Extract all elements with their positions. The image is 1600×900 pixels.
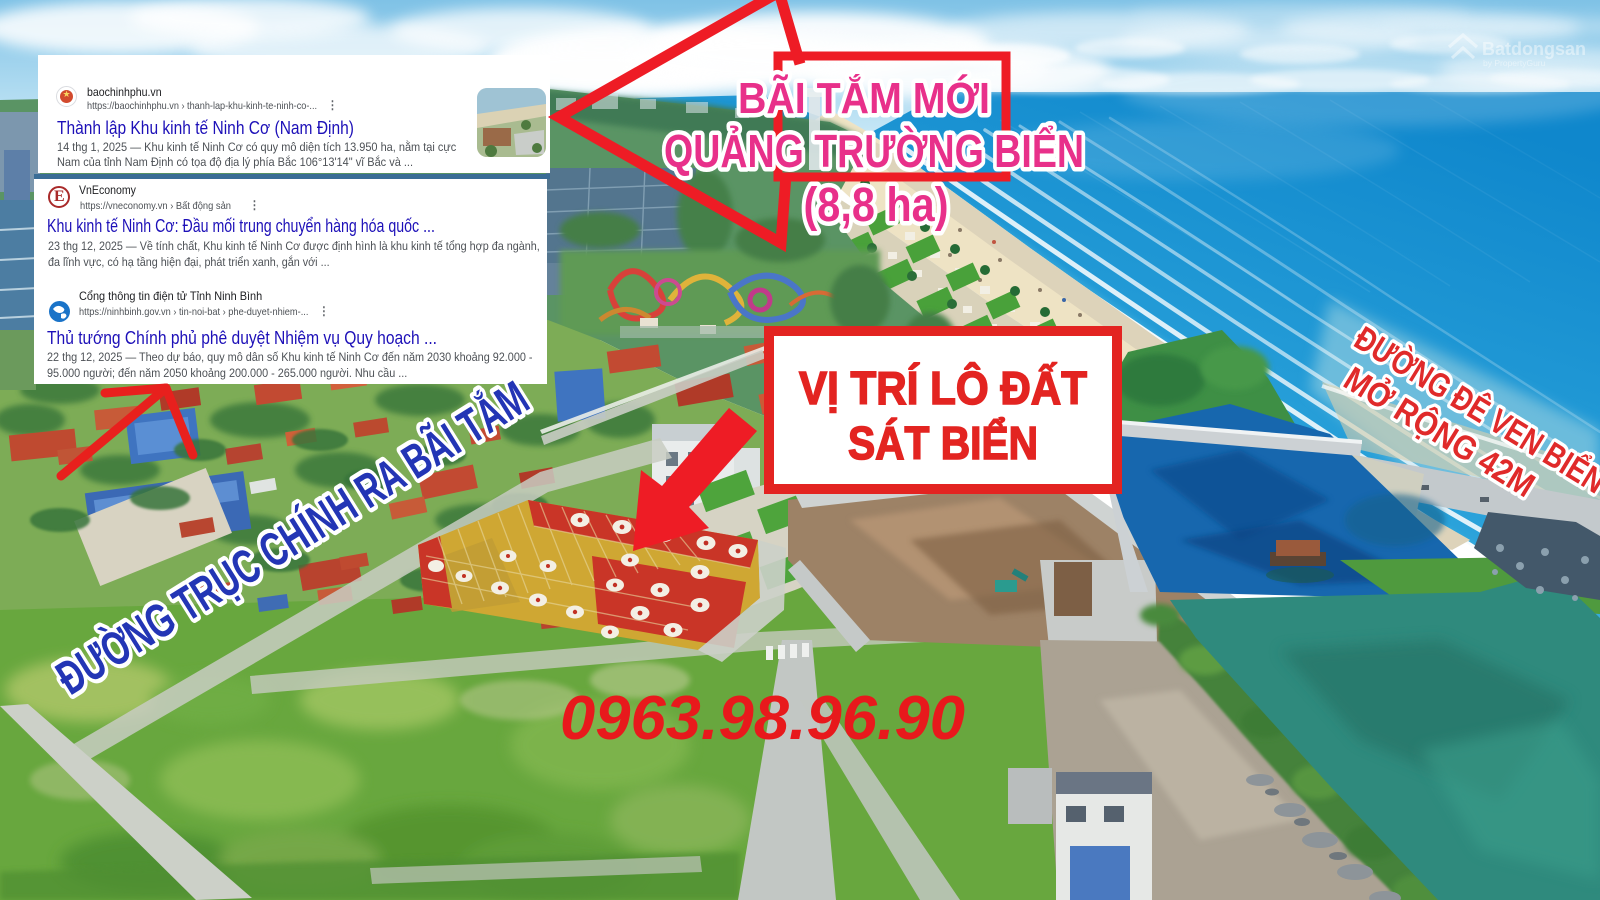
svg-text:0963.98.96.90: 0963.98.96.90 (560, 684, 965, 753)
svg-text:by PropertyGuru: by PropertyGuru (1483, 58, 1546, 68)
svg-text:BÃI TẮM MỚI: BÃI TẮM MỚI (738, 73, 990, 123)
svg-text:Batdongsan: Batdongsan (1482, 39, 1586, 59)
svg-text:SÁT BIỂN: SÁT BIỂN (848, 417, 1038, 469)
svg-text:QUẢNG TRƯỜNG BIỂN: QUẢNG TRƯỜNG BIỂN (664, 125, 1084, 177)
svg-text:(8,8 ha): (8,8 ha) (804, 179, 949, 232)
svg-text:ĐƯỜNG TRỤC CHÍNH RA BÃI TẮM: ĐƯỜNG TRỤC CHÍNH RA BÃI TẮM (47, 370, 538, 705)
svg-text:VỊ TRÍ LÔ ĐẤT: VỊ TRÍ LÔ ĐẤT (799, 362, 1087, 414)
